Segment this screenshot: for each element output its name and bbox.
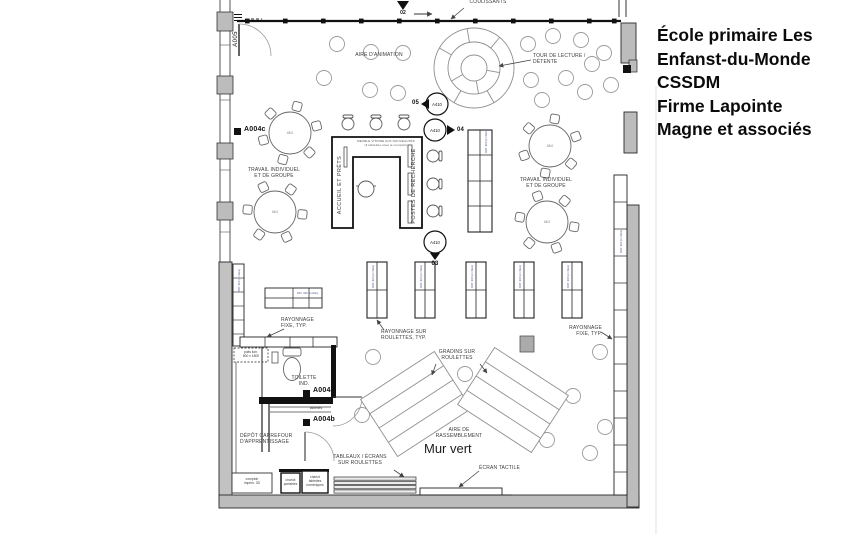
title-block: École primaire Les Enfanst-du-Monde CSSD… — [657, 24, 813, 142]
title-line-1: École primaire Les — [657, 24, 813, 48]
fixed-shelving-right: RAY. 900 (2 côtés) — [614, 175, 627, 495]
shelf-unit: RAY. 900 (2 côtés) — [466, 262, 486, 318]
pouf — [604, 78, 619, 93]
label-marker-02: 02 — [396, 10, 410, 16]
callout-a410-03: A410 — [424, 231, 446, 260]
shelf-unit: RAY. 900 (2 côtés) — [415, 262, 435, 318]
shelf-micro-tag: RAY. 900 (2 côtés) — [371, 265, 375, 288]
label-postes-recherche: POSTES DE RECHERCHE — [411, 146, 417, 226]
svg-text:A410: A410 — [430, 128, 440, 133]
title-line-4: Firme Lapointe — [657, 95, 813, 119]
label-accueil-prets: ACCUEIL ET PRÊTS — [337, 148, 343, 222]
pouf — [391, 86, 406, 101]
pouf — [363, 83, 378, 98]
label-tag-a004b: A004b — [313, 416, 347, 425]
label-tablettes: tablettes — [300, 406, 332, 410]
pouf — [366, 350, 381, 365]
round-table: 48.0 — [515, 190, 580, 253]
pouf — [546, 29, 561, 44]
shelf-micro-tag: RAY. 900 (2 côtés) — [297, 291, 319, 295]
pouf — [317, 71, 332, 86]
tag-square-a004a — [303, 390, 310, 397]
label-rayonnage-fixe-right: RAYONNAGE FIXE, TYP. — [552, 325, 602, 338]
pouf — [524, 73, 539, 88]
shelf-unit: RAY. 900 (2 côtés) — [514, 262, 534, 318]
mobile-screen-block — [520, 336, 534, 352]
shelf-micro-tag: RAY. 900 (2 côtés) — [566, 265, 570, 288]
label-chariot-tablettes: chariot tablettes numériques — [302, 475, 328, 488]
round-table: 48.0 — [518, 114, 581, 179]
label-chariot-portables: chariot portables — [281, 478, 300, 486]
pouf — [578, 85, 593, 100]
title-line-2: Enfanst-du-Monde — [657, 48, 813, 72]
pouf — [574, 33, 589, 48]
label-travail-groupe-left: TRAVAIL INDIVIDUEL ET DE GROUPE — [239, 167, 309, 180]
label-callout-04: 04 — [457, 127, 469, 135]
tableaux-ecrans-boards — [334, 477, 416, 493]
shelf-micro-tag: RAY. 900 (2 côtés) — [237, 269, 241, 292]
section-marker-02 — [397, 1, 409, 10]
label-tag-a004a: A004a — [313, 387, 347, 396]
label-rayonnage-roulettes: RAYONNAGE SUR ROULETTES, TYP. — [381, 329, 443, 342]
label-aire-animation: AIRE D'ANIMATION — [341, 52, 417, 58]
table-size-label: 48.0 — [272, 210, 279, 214]
callout-a410-04: A410 — [424, 119, 455, 141]
round-table: 48.0 — [243, 181, 308, 243]
label-desk-note: MEUBLE VITRINE AUX NOUVEAUTÉS (3 tablett… — [355, 140, 417, 148]
research-shelf: RAY. 900 (2 côtés) — [468, 130, 492, 232]
label-callout-05: 05 — [407, 100, 419, 108]
pouf — [458, 367, 473, 382]
table-size-label: 48.0 — [287, 131, 294, 135]
table-size-label: 48.0 — [547, 144, 554, 148]
pouf — [583, 446, 598, 461]
svg-text:A410: A410 — [432, 102, 442, 107]
shelf-micro-tag: RAY. 900 (2 côtés) — [470, 265, 474, 288]
label-ecran-tactile: ÉCRAN TACTILE — [479, 465, 539, 471]
label-aire-rassemblement: AIRE DE RASSEMBLEMENT — [427, 427, 491, 440]
ecran-tactile-device — [420, 488, 502, 495]
pouf — [559, 71, 574, 86]
pouf — [593, 345, 608, 360]
label-puits: puits lum. 600 x 1800 — [235, 350, 267, 358]
shelf-micro-tag: RAY. 900 (2 côtés) — [419, 265, 423, 288]
label-tour-lecture: TOUR DE LECTURE / DÉTENTE — [533, 53, 597, 66]
callout-a410-05: A410 — [421, 93, 448, 115]
pouf — [598, 420, 613, 435]
label-travail-groupe-right: TRAVAIL INDIVIDUEL ET DE GROUPE — [511, 177, 581, 190]
shelf-micro-tag: RAY. 900 (2 côtés) — [619, 230, 623, 253]
label-mur-vert: Mur vert — [424, 441, 472, 456]
label-comptoir-imprim: comptoir imprim. 3D — [234, 477, 270, 485]
label-toilette: TOILETTE IND. — [284, 375, 324, 388]
shelf-micro-tag: RAY. 900 (2 côtés) — [518, 265, 522, 288]
label-gradins: GRADINS SUR ROULETTES — [429, 349, 485, 362]
wall-bottom — [219, 495, 639, 508]
partition-top-coulissants — [237, 0, 626, 23]
label-tag-a005: A005 — [233, 22, 239, 56]
tour-de-lecture — [434, 28, 514, 108]
bottom-equipment — [232, 469, 512, 495]
pouf — [597, 46, 612, 61]
pouf — [535, 93, 550, 108]
desk-chair — [356, 181, 376, 197]
label-tableaux-ecrans: TABLEAUX / ÉCRANS SUR ROULETTES — [326, 454, 394, 467]
shelf-unit: RAY. 900 (2 côtés) — [367, 262, 387, 318]
window-wall-left — [217, 0, 233, 263]
mobile-shelving: RAY. 900 (2 côtés) RAY. 900 (2 côtés) RA… — [367, 262, 582, 318]
table-size-label: 48.0 — [544, 220, 551, 224]
pouf — [521, 37, 536, 52]
tag-square-a004b — [303, 419, 310, 426]
label-tag-a004c: A004c — [244, 126, 278, 135]
title-line-5: Magne et associés — [657, 118, 813, 142]
shelf-micro-tag: RAY. 900 (2 côtés) — [484, 130, 488, 153]
fixed-shelving-left: RAY. 900 (2 côtés) RAY. 900 (2 côtés) — [233, 264, 337, 362]
title-line-3: CSSDM — [657, 71, 813, 95]
label-coulissants: COULISSANTS — [452, 0, 524, 5]
floor-plan-sheet: RAY. 900 (2 côtés) 48 — [0, 0, 862, 534]
tag-square-a004c — [234, 128, 241, 135]
label-rayonnage-fixe-left: RAYONNAGE FIXE, TYP. — [281, 317, 329, 330]
shelf-unit: RAY. 900 (2 côtés) — [562, 262, 582, 318]
pouf — [330, 37, 345, 52]
label-depot: DÉPÔT CARREFOUR D'APPRENTISSAGE — [240, 433, 316, 446]
svg-text:A410: A410 — [430, 240, 440, 245]
label-callout-03: 03 — [429, 261, 441, 269]
wall-left-solid — [219, 262, 232, 502]
